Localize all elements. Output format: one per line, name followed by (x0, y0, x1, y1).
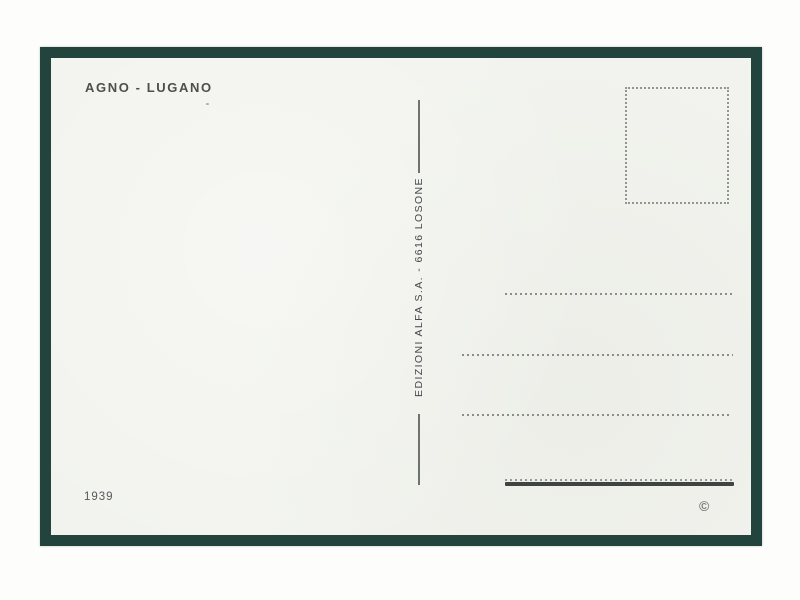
publisher-imprint: EDIZIONI ALFA S.A. - 6616 LOSONE (411, 167, 427, 407)
catalog-number: 1939 (84, 491, 114, 503)
address-dotted-line-1 (505, 293, 733, 295)
postcard-back: AGNO - LUGANO EDIZIONI ALFA S.A. - 6616 … (51, 58, 751, 535)
postcard-title: AGNO - LUGANO (85, 80, 213, 95)
stamp-box (625, 87, 729, 204)
bottom-rule-solid-bar (505, 482, 734, 486)
copyright-symbol: © (699, 498, 709, 514)
postcard-scan: AGNO - LUGANO EDIZIONI ALFA S.A. - 6616 … (0, 0, 800, 600)
postcard-edge-frame: AGNO - LUGANO EDIZIONI ALFA S.A. - 6616 … (40, 47, 762, 546)
address-dotted-line-3 (462, 414, 731, 416)
bottom-rule-dotted-edge (505, 479, 734, 481)
scan-speck-artifact (206, 103, 209, 105)
bottom-rule (505, 479, 734, 486)
address-dotted-line-2 (462, 354, 733, 356)
center-divider-bottom-line (418, 414, 420, 485)
center-divider-top-line (418, 100, 420, 173)
